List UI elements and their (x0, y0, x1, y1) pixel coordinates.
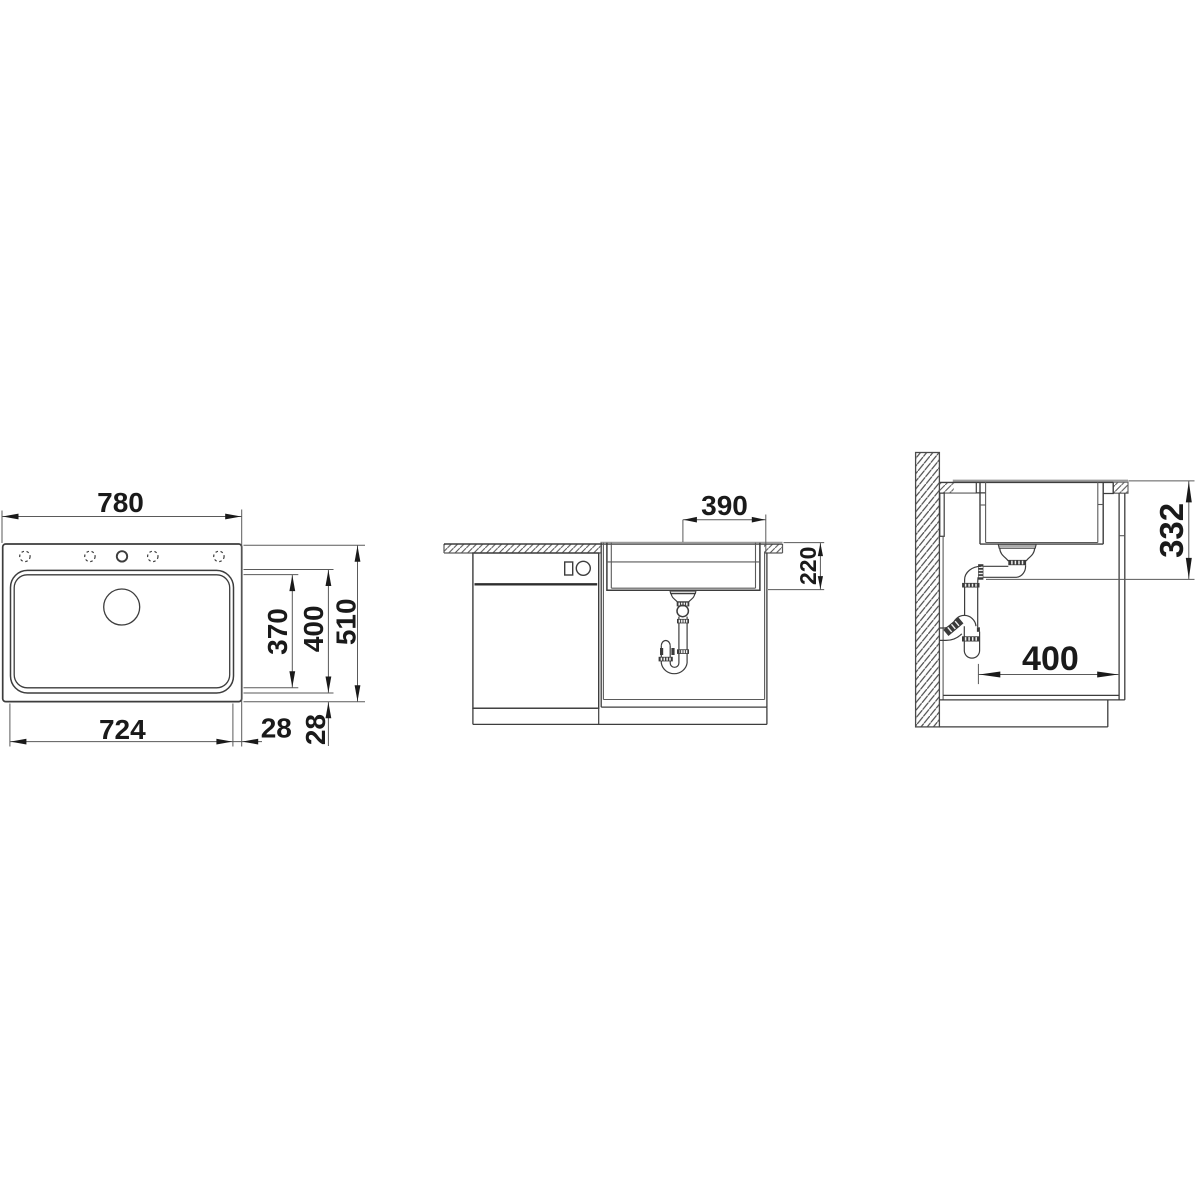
svg-text:780: 780 (97, 487, 144, 518)
svg-text:332: 332 (1153, 503, 1190, 558)
svg-text:510: 510 (330, 598, 361, 645)
svg-text:28: 28 (261, 713, 292, 744)
svg-text:370: 370 (262, 608, 293, 655)
svg-text:390: 390 (701, 490, 748, 521)
svg-text:400: 400 (298, 605, 329, 652)
svg-text:724: 724 (99, 714, 146, 745)
svg-text:220: 220 (795, 547, 821, 585)
svg-text:28: 28 (300, 714, 331, 745)
svg-text:400: 400 (1022, 640, 1079, 678)
